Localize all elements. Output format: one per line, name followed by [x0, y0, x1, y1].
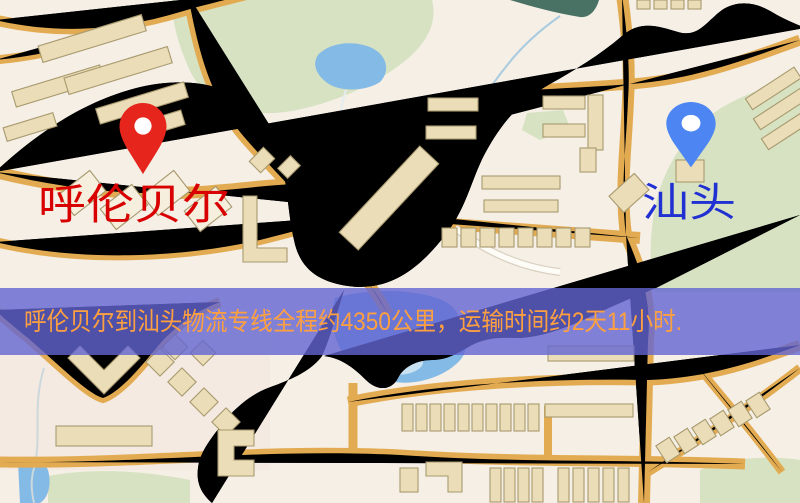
- destination-pin-hole: [682, 115, 701, 132]
- origin-pin-hole: [134, 117, 151, 134]
- destination-label: 汕头: [642, 181, 736, 225]
- route-info-banner: 呼伦贝尔到汕头物流专线全程约4350公里，运输时间约2天11小时.: [0, 288, 800, 355]
- map-canvas[interactable]: 呼伦贝尔 汕头 呼伦贝尔到汕头物流专线全程约4350公里，运输时间约2天11小时…: [0, 0, 800, 503]
- logistics-route-map: 呼伦贝尔 汕头 呼伦贝尔到汕头物流专线全程约4350公里，运输时间约2天11小时…: [0, 0, 800, 503]
- origin-label: 呼伦贝尔: [38, 181, 230, 228]
- route-info-text: 呼伦贝尔到汕头物流专线全程约4350公里，运输时间约2天11小时.: [24, 308, 682, 336]
